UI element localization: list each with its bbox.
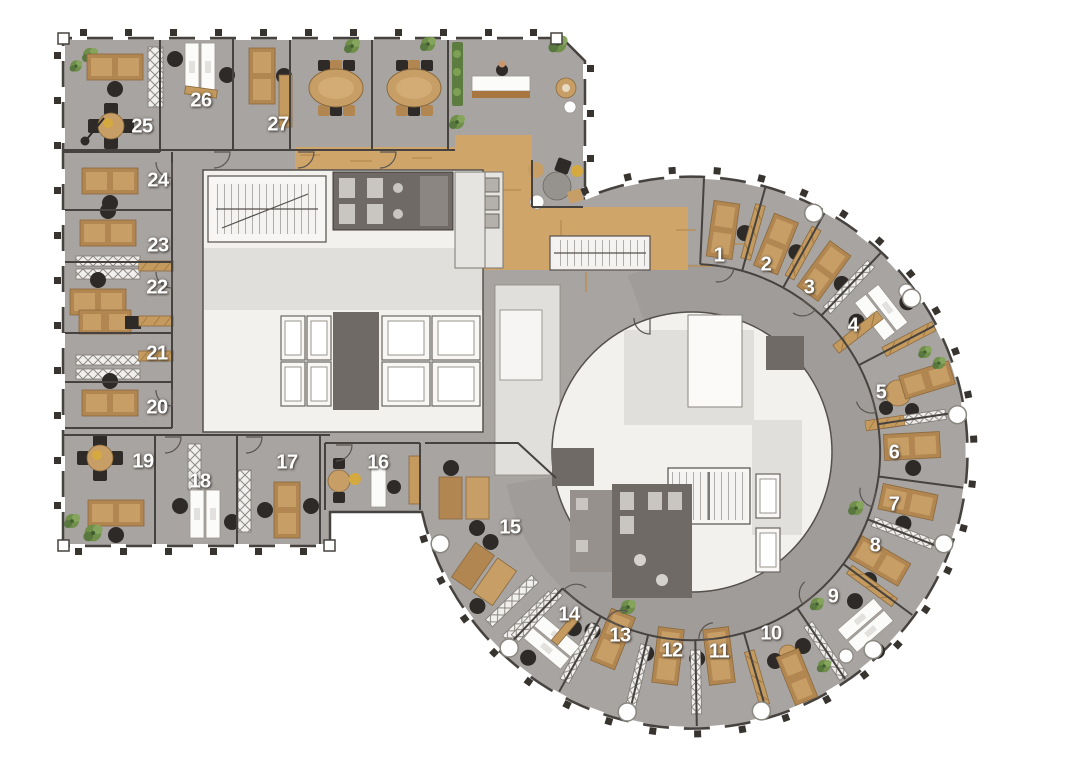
corridor-stair: [550, 236, 650, 270]
restrooms-rect-wing: [333, 172, 453, 230]
floor-plan: 1234567891011121314151617181920212223242…: [0, 0, 1089, 772]
shaft: [333, 312, 379, 410]
kitchenette: [455, 172, 503, 268]
floor-plan-drawing: [0, 0, 1089, 772]
rect-core: [203, 170, 503, 432]
